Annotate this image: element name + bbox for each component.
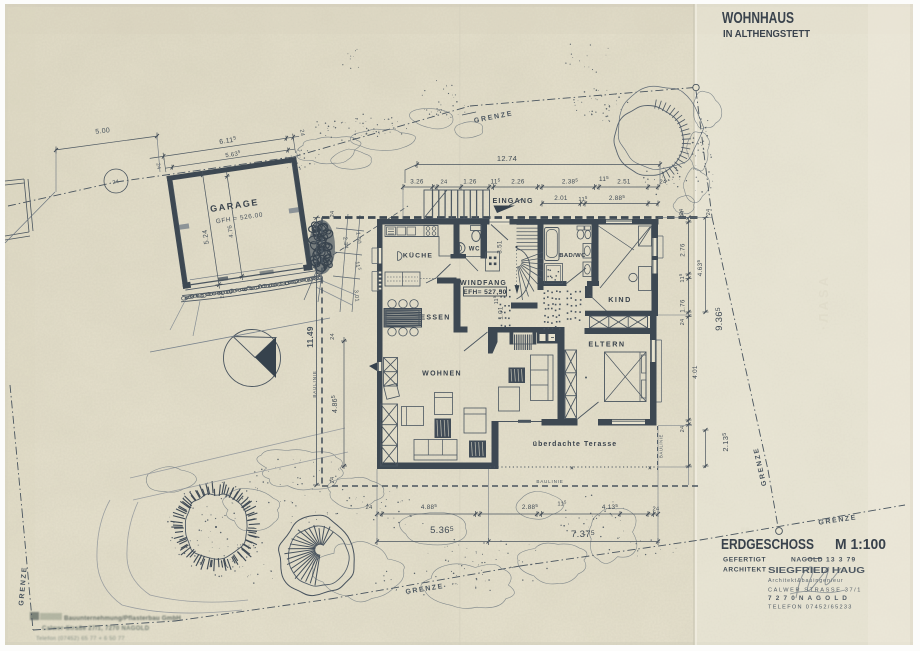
svg-text:WOHNHAUS: WOHNHAUS	[722, 10, 794, 27]
svg-text:KIND: KIND	[608, 295, 632, 304]
svg-text:2.51: 2.51	[617, 179, 631, 186]
svg-text:24: 24	[706, 209, 712, 216]
svg-text:Telefon (07452) 65 77 + 6 50 7: Telefon (07452) 65 77 + 6 50 77	[36, 636, 125, 642]
svg-text:ESSEN: ESSEN	[420, 315, 450, 322]
svg-text:KÜCHE: KÜCHE	[403, 251, 433, 260]
svg-text:WINDFANG: WINDFANG	[460, 280, 507, 287]
svg-text:3.51: 3.51	[497, 240, 504, 254]
svg-text:ELTERN: ELTERN	[588, 340, 625, 349]
svg-text:1.26: 1.26	[463, 179, 477, 186]
svg-text:13 3 79: 13 3 79	[826, 557, 856, 564]
svg-text:7 2 7 0 N A G O L D: 7 2 7 0 N A G O L D	[768, 595, 848, 602]
svg-text:IN ALTHENGSTETT: IN ALTHENGSTETT	[723, 29, 810, 40]
svg-text:1.76: 1.76	[680, 299, 687, 313]
svg-text:11.49: 11.49	[306, 326, 315, 348]
svg-text:GEFERTIGT: GEFERTIGT	[723, 557, 766, 564]
svg-text:4.01: 4.01	[692, 365, 699, 379]
svg-text:1.01: 1.01	[498, 306, 505, 320]
svg-text:24: 24	[659, 180, 667, 186]
svg-text:3.26: 3.26	[410, 179, 424, 186]
svg-text:WOHNEN: WOHNEN	[422, 371, 462, 378]
svg-text:24: 24	[298, 129, 305, 137]
svg-text:ARCHITEKT: ARCHITEKT	[723, 567, 767, 574]
svg-text:2.34: 2.34	[341, 237, 348, 250]
svg-text:WC: WC	[469, 247, 481, 253]
svg-text:·ЛАSA: ·ЛАSA	[816, 274, 831, 330]
svg-text:SIEGFRIED HAUG: SIEGFRIED HAUG	[768, 565, 865, 575]
svg-text:ERDGESCHOSS: ERDGESCHOSS	[721, 537, 814, 553]
svg-text:3.01: 3.01	[352, 290, 359, 303]
svg-text:24: 24	[219, 292, 226, 299]
svg-text:TELEFON 07452/65233: TELEFON 07452/65233	[768, 605, 853, 611]
svg-text:24: 24	[365, 505, 373, 511]
svg-text:BAULINIE: BAULINIE	[659, 434, 664, 458]
svg-text:24: 24	[155, 163, 162, 170]
svg-text:1.50: 1.50	[354, 232, 361, 245]
svg-text:überdachte Terasse: überdachte Terasse	[533, 441, 617, 448]
svg-text:EFH= 527,50: EFH= 527,50	[463, 289, 506, 296]
svg-text:×: ×	[570, 466, 574, 472]
svg-text:24: 24	[440, 180, 448, 186]
svg-text:NAGOLD: NAGOLD	[791, 557, 823, 564]
svg-text:24: 24	[330, 211, 336, 218]
svg-text:24: 24	[330, 477, 336, 484]
svg-text:2.76: 2.76	[680, 243, 687, 257]
svg-text:CALWER STRASSE 37/1: CALWER STRASSE 37/1	[768, 588, 862, 594]
svg-text:M 1:100: M 1:100	[835, 537, 886, 553]
svg-text:2.26: 2.26	[511, 179, 525, 186]
svg-text:2.01: 2.01	[554, 195, 568, 202]
svg-text:BAD/WC: BAD/WC	[559, 253, 586, 259]
svg-text:×: ×	[648, 466, 652, 472]
svg-text:24: 24	[679, 209, 685, 216]
svg-text:12.74: 12.74	[497, 154, 517, 163]
svg-text:BAULINIE: BAULINIE	[536, 479, 563, 484]
svg-text:24: 24	[680, 319, 686, 326]
svg-text:24: 24	[112, 179, 120, 186]
svg-text:24: 24	[652, 507, 660, 513]
svg-text:Bauunternehmung/Pflasterbau Gm: Bauunternehmung/Pflasterbau GmbH	[64, 615, 181, 622]
svg-text:24: 24	[680, 426, 686, 433]
svg-text:Calwer-Straße 27/1, 7270 NAGOL: Calwer-Straße 27/1, 7270 NAGOLD	[42, 626, 150, 632]
svg-text:24: 24	[330, 333, 336, 340]
